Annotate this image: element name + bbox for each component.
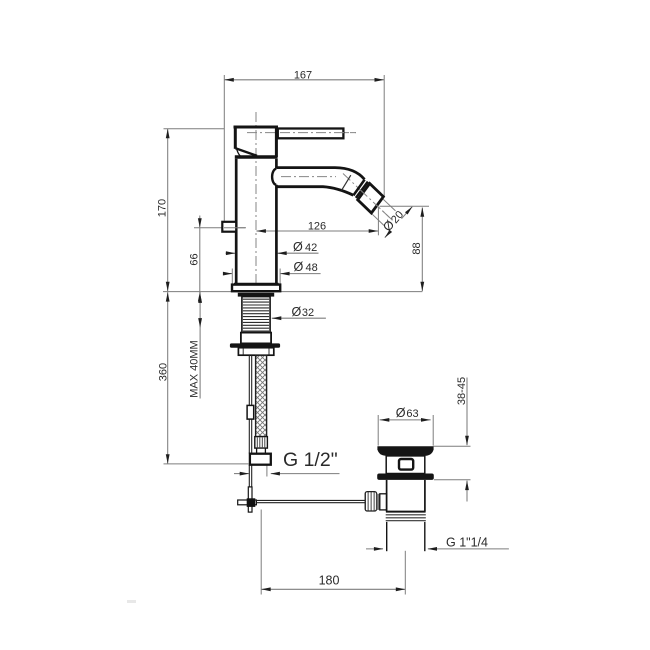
svg-text:Ø20: Ø20 <box>380 208 406 235</box>
svg-text:180: 180 <box>319 573 340 587</box>
svg-text:126: 126 <box>308 220 326 232</box>
svg-text:MAX 40MM: MAX 40MM <box>188 340 200 397</box>
svg-text:38-45: 38-45 <box>456 377 468 405</box>
svg-text:G 1/2": G 1/2" <box>283 449 338 471</box>
svg-text:167: 167 <box>294 69 312 81</box>
svg-text:360: 360 <box>157 363 169 381</box>
svg-text:Ø48: Ø48 <box>294 260 318 274</box>
svg-text:G 1"1/4: G 1"1/4 <box>446 536 488 550</box>
svg-text:88: 88 <box>411 242 423 254</box>
svg-text:66: 66 <box>188 253 200 265</box>
svg-text:Ø42: Ø42 <box>293 240 317 254</box>
svg-text:Ø32: Ø32 <box>292 305 315 319</box>
svg-text:Ø63: Ø63 <box>396 406 419 420</box>
svg-text:170: 170 <box>157 199 169 217</box>
